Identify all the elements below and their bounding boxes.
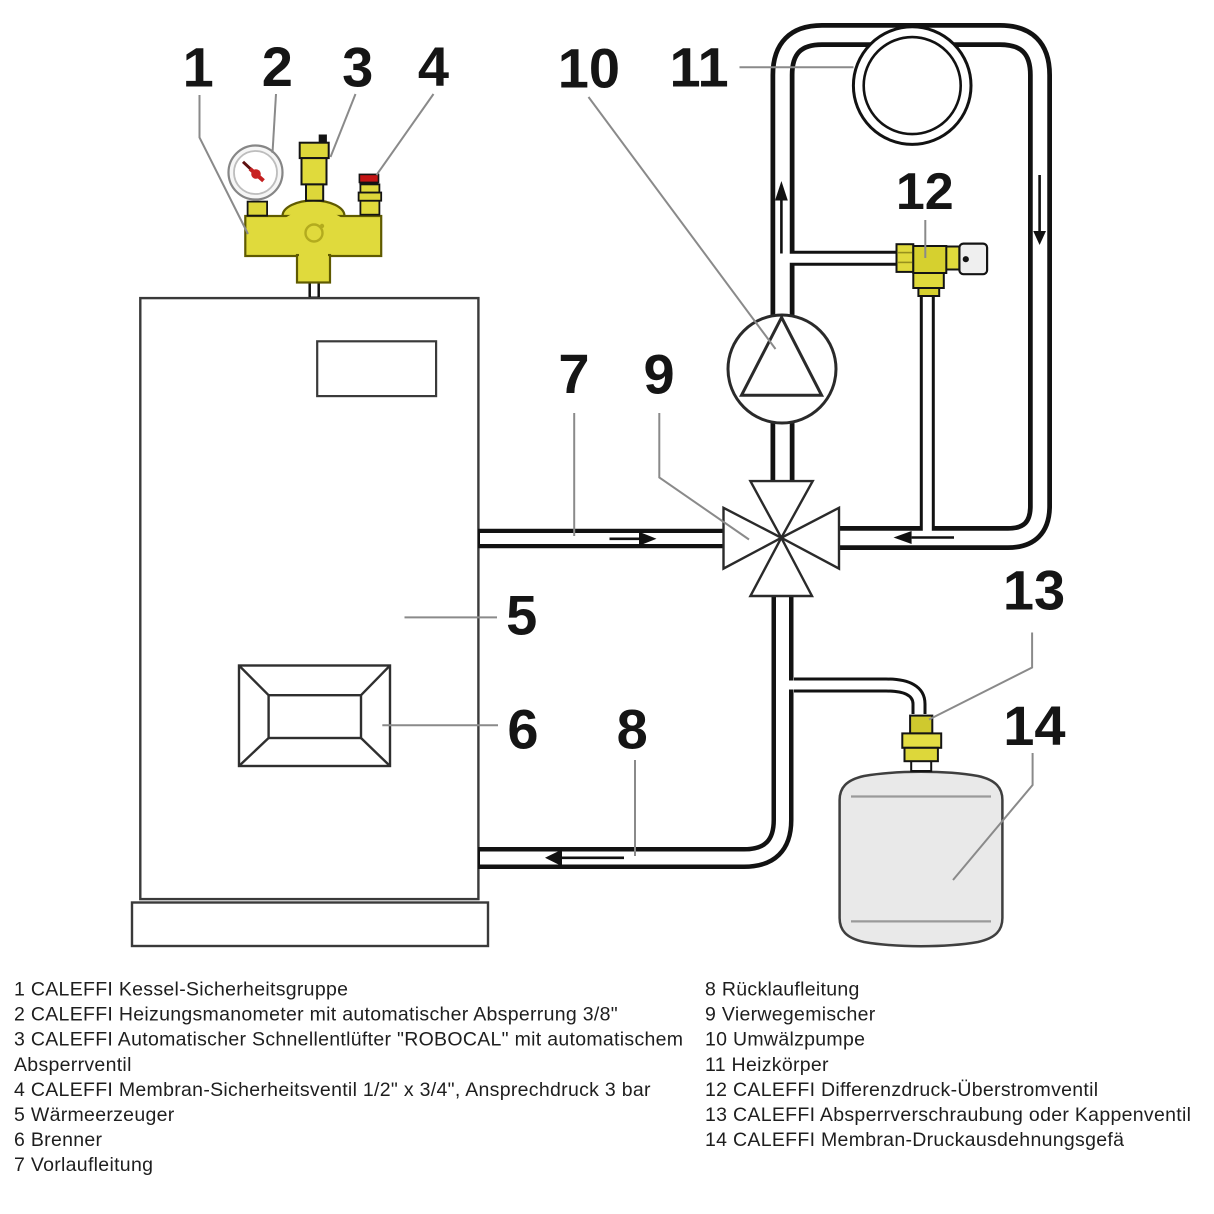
svg-text:11: 11 — [669, 35, 728, 98]
svg-text:5: 5 — [506, 583, 537, 646]
svg-text:1 CALEFFI Kessel-Sicherheitsgr: 1 CALEFFI Kessel-Sicherheitsgruppe — [14, 979, 348, 1001]
svg-text:10 Umwälzpumpe: 10 Umwälzpumpe — [705, 1029, 865, 1051]
svg-text:3: 3 — [342, 35, 373, 98]
svg-text:5 Wärmeerzeuger: 5 Wärmeerzeuger — [14, 1104, 175, 1126]
svg-text:12 CALEFFI Differenzdruck-Über: 12 CALEFFI Differenzdruck-Überstromventi… — [705, 1079, 1098, 1101]
svg-text:8: 8 — [617, 698, 648, 761]
svg-text:7: 7 — [558, 342, 589, 405]
svg-text:Absperrventil: Absperrventil — [14, 1054, 132, 1076]
svg-text:9 Vierwegemischer: 9 Vierwegemischer — [705, 1004, 876, 1026]
svg-text:6: 6 — [507, 698, 538, 761]
svg-text:12: 12 — [896, 163, 954, 221]
svg-text:7 Vorlaufleitung: 7 Vorlaufleitung — [14, 1154, 153, 1176]
svg-text:1: 1 — [183, 36, 214, 99]
svg-text:9: 9 — [644, 343, 675, 406]
svg-text:2 CALEFFI Heizungsmanometer mi: 2 CALEFFI Heizungsmanometer mit automati… — [14, 1004, 618, 1026]
svg-text:2: 2 — [262, 35, 293, 98]
svg-text:6 Brenner: 6 Brenner — [14, 1129, 103, 1151]
svg-text:14 CALEFFI Membran-Druckausdeh: 14 CALEFFI Membran-Druckausdehnungsgefä — [705, 1129, 1124, 1151]
svg-text:4: 4 — [418, 35, 449, 98]
svg-text:4 CALEFFI Membran-Sicherheitsv: 4 CALEFFI Membran-Sicherheitsventil 1/2"… — [14, 1079, 651, 1101]
svg-text:13: 13 — [1003, 559, 1065, 622]
svg-text:10: 10 — [558, 36, 620, 99]
svg-text:14: 14 — [1003, 694, 1065, 757]
svg-text:8 Rücklaufleitung: 8 Rücklaufleitung — [705, 979, 860, 1001]
svg-text:13 CALEFFI Absperrverschraubun: 13 CALEFFI Absperrverschraubung oder Kap… — [705, 1104, 1191, 1126]
svg-text:3 CALEFFI Automatischer Schnel: 3 CALEFFI Automatischer Schnellentlüfter… — [14, 1029, 683, 1051]
svg-text:11 Heizkörper: 11 Heizkörper — [705, 1054, 829, 1076]
